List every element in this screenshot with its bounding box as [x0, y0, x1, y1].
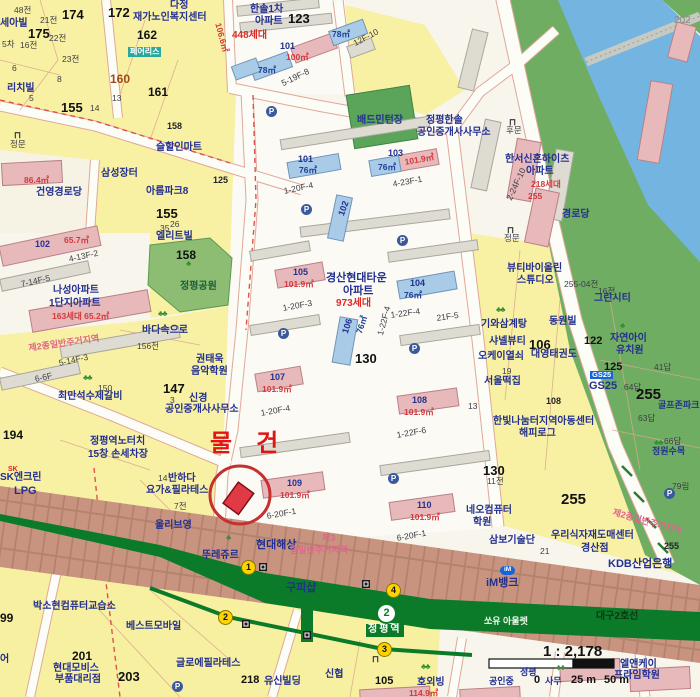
parcel-number: 5 [29, 94, 34, 103]
exit-1[interactable]: 1 [241, 560, 256, 575]
facility-icon[interactable] [362, 580, 370, 588]
gate-label: 정문 [10, 140, 26, 149]
area-measure: 76㎡ [378, 163, 396, 172]
shop-label: 경산점 [581, 544, 609, 555]
exit-2[interactable]: 2 [218, 610, 233, 625]
scale-bar-black [573, 659, 614, 668]
apartment-label: 아파트 [255, 17, 283, 28]
parcel-number: 172 [108, 6, 130, 20]
shop-label: 박소현컴퓨터교습소 [33, 602, 116, 613]
gate-icon[interactable]: ⊓ [372, 655, 379, 664]
building-number: 109 [287, 479, 302, 488]
shop-label: 구피샵 [286, 583, 316, 595]
area-measure: 100㎡ [286, 53, 309, 62]
poi-label: 경로당 [562, 210, 590, 221]
tree-icon: ♣♣ [496, 306, 505, 314]
parking-icon[interactable]: P [278, 328, 289, 339]
parcel-number: 123 [288, 12, 310, 26]
area-measure: 86.4㎡ [24, 176, 49, 185]
poi-label: KDB산업은행 [608, 559, 672, 571]
shop-label: 바다속으로 [142, 326, 188, 337]
parking-icon[interactable]: P [664, 488, 675, 499]
parcel-number: 99 [0, 612, 13, 625]
building-number: 108 [412, 396, 427, 405]
households-label: 163세대 65.2㎡ [52, 312, 109, 321]
tree-icon: ♣♣ [421, 663, 430, 671]
parcel-number: 21전 [40, 16, 57, 25]
parcel-number: 255 [664, 542, 679, 551]
zoning-label: 제3 [322, 534, 335, 543]
parcel-number: 11전 [487, 477, 504, 486]
building-label: 세아빌 [0, 19, 28, 30]
facility-icon[interactable] [259, 563, 267, 571]
exit-4[interactable]: 4 [386, 583, 401, 598]
apartment-label: 나성아파트 [53, 286, 99, 297]
shop-label: 삼보기술단 [489, 536, 535, 547]
parcel-number: 130 [355, 352, 377, 366]
shop-label: 기와삼계탕 [481, 320, 527, 331]
shop-label: 글로에필라테스 [176, 659, 240, 670]
apartment-label: 아파트 [526, 167, 554, 178]
bank-icon[interactable]: iM [500, 566, 515, 575]
parcel-number: 105 [375, 676, 393, 688]
shop-label: 올리브영 [155, 521, 192, 532]
parcel-number: 5차 [2, 40, 15, 49]
area-measure: 101.9㎡ [410, 513, 440, 522]
parcel-number: 201 [72, 650, 92, 663]
shop-label: 스튜디오 [517, 276, 554, 287]
shop-label: 15창 손세차장 [88, 450, 148, 461]
tree-icon: ♣ [226, 534, 230, 542]
parcel-number: 22전 [49, 34, 66, 43]
shop-label: 프라임학원 [614, 671, 660, 682]
area-measure: 78㎡ [258, 66, 276, 75]
poi-label: 다정 [170, 1, 188, 12]
shop-label: 쏘유 아울렛 [484, 617, 528, 626]
poi-label: 공인중개사사무소 [417, 128, 491, 139]
parcel-number: 26 [170, 220, 179, 229]
building-number: 103 [388, 149, 403, 158]
facility-icon[interactable] [303, 631, 311, 639]
parcel-number: 194 [3, 429, 23, 442]
apartment-label: 한솔1차 [250, 5, 283, 16]
area-measure: 78㎡ [332, 30, 350, 39]
parcel-number: 48전 [14, 6, 31, 15]
tree-icon: ♣♣ [654, 439, 663, 447]
poi-label: 건영경로당 [36, 188, 82, 199]
shop-label: GS25 [589, 381, 617, 393]
tree-icon: ♣ [620, 322, 624, 330]
tree-icon: ♣♣ [83, 374, 92, 382]
poi-label: 해피로그 [519, 429, 556, 440]
exit-3[interactable]: 3 [377, 642, 392, 657]
parking-icon[interactable]: P [388, 473, 399, 484]
building-label: 유신빌딩 [264, 677, 301, 688]
scale-mid: 25 m [571, 675, 596, 687]
parcel-number: 14 [90, 104, 99, 113]
parcel-number: 162 [137, 29, 157, 42]
gate-icon[interactable]: ⊓ [14, 131, 21, 140]
area-measure: 65.7㎡ [64, 236, 89, 245]
zoning-label: 종일반주거지역 [290, 546, 348, 555]
shop-label: SK엔크린 [0, 473, 42, 484]
parcel-number: 7전 [174, 502, 187, 511]
parcel-number: 63답 [638, 414, 655, 423]
parcel-number: 255-04전 [564, 280, 598, 289]
parking-icon[interactable]: P [397, 235, 408, 246]
building-label: 동원빌 [549, 317, 577, 328]
gate-label: 후문 [506, 126, 522, 135]
building-number: 110 [417, 501, 432, 510]
parking-icon[interactable]: P [409, 343, 420, 354]
tree-icon: ♣♣ [556, 664, 565, 672]
shop-label: 샤넬뷰티 [489, 337, 526, 348]
poi-label: 아름파크8 [146, 187, 188, 198]
poi-label: 유치원 [616, 346, 644, 357]
area-measure: 114.9㎡ [409, 689, 438, 697]
station-name-badge[interactable]: 정평역 [366, 624, 404, 637]
shop-label: 학원 [473, 518, 491, 529]
poi-label: 한빛나눔터지역아동센터 [493, 417, 594, 428]
parcel-number: 13 [468, 402, 477, 411]
area-measure: 101.9㎡ [404, 408, 434, 417]
area-measure: 101.9㎡ [262, 385, 292, 394]
map-canvas[interactable]: 48전세아빌174172다정재가노인복지센터17521전5차16전22전23전6… [0, 0, 700, 697]
area-measure: 101.9㎡ [280, 491, 310, 500]
tree-icon: ♣♣ [158, 310, 167, 318]
apartment-label: 한서신혼하이츠 [505, 155, 569, 166]
building-label: 호외빙 [417, 678, 445, 689]
building-label: 엘리트빌 [156, 232, 193, 243]
parcel-number: 122 [584, 336, 602, 348]
building-number: 107 [270, 373, 285, 382]
parcel-number: 174 [62, 8, 84, 22]
poi-label: 정원수목 [652, 447, 685, 456]
building-number: 101 [298, 155, 313, 164]
parcel-number: 255 [561, 492, 586, 508]
parking-icon[interactable]: P [266, 106, 277, 117]
shop-label: 네오컴퓨터 [466, 506, 512, 517]
scale-zero: 0 [534, 675, 540, 687]
shop-label: 신경 [189, 394, 207, 405]
apartment-name: 경산현대타운 [326, 273, 387, 285]
shop-label: 반하다 [168, 474, 196, 485]
parcel-number: 8 [57, 75, 62, 84]
parcel-number: 147 [163, 382, 185, 396]
shop-label: 부품대리점 [55, 675, 101, 686]
shop-label: 정평역노터치 [90, 437, 145, 448]
parcel-number: 108 [546, 397, 561, 406]
poi-label: 삼성장터 [101, 169, 138, 180]
shop-badge[interactable]: GS25 [590, 371, 613, 379]
tree-icon: ♣ [186, 260, 190, 268]
parcel-number: 160 [110, 73, 130, 86]
parcel-number: 6 [12, 64, 17, 73]
building-number: 102 [35, 240, 50, 249]
parking-icon[interactable]: P [301, 204, 312, 215]
parcel-number: 125 [213, 176, 228, 185]
park-label: 정평공원 [180, 282, 217, 293]
shop-label: 요가&필라테스 [146, 486, 208, 497]
poi-label: 어 [0, 655, 9, 666]
households-label: 973세대 [336, 299, 371, 310]
poi-label: 공인중 [489, 677, 514, 686]
gate-icon[interactable]: ⊓ [507, 226, 514, 235]
shop-label: 음악학원 [191, 367, 228, 378]
area-measure: 76㎡ [299, 166, 317, 175]
shop-badge[interactable]: 페어리스 [128, 47, 161, 57]
parcel-number: 218 [241, 675, 259, 687]
map-base-layer [0, 0, 700, 697]
shop-label: LPG [14, 486, 37, 498]
parcel-number: 202 [674, 16, 691, 27]
parcel-number: 175 [28, 27, 50, 41]
station-line-circle: 2 [376, 603, 397, 624]
parcel-number: 255 [528, 192, 542, 201]
parcel-number: 41답 [654, 363, 671, 372]
parcel-number: 156전 [137, 342, 159, 351]
parcel-number: 161 [148, 86, 168, 99]
poi-label: 자연아이 [610, 334, 647, 345]
parcel-number: 13 [112, 94, 121, 103]
area-measure: 101.9㎡ [284, 280, 314, 289]
shop-label: 서울떡집 [484, 377, 521, 388]
building-number: 101 [280, 42, 295, 51]
shop-label: 슬할인마트 [156, 143, 202, 154]
households-label: 448세대 [232, 31, 267, 42]
subject-marker-label: 물 건 [210, 432, 287, 457]
area-measure: 76㎡ [404, 291, 422, 300]
parcel-number: 79림 [672, 482, 689, 491]
poi-label: 그린시티 [594, 294, 631, 305]
shop-label: 뚜레쥬르 [202, 551, 239, 562]
poi-label: 사무 [545, 677, 562, 686]
facility-icon[interactable] [242, 620, 250, 628]
shop-label: 우리식자재도매센터 [551, 531, 634, 542]
parcel-number: 16전 [20, 41, 37, 50]
parcel-number: 19 [502, 367, 511, 376]
shop-label: 오케이열쇠 [478, 352, 524, 363]
building-number: 105 [293, 268, 308, 277]
shop-label: 골프존파크 [658, 401, 699, 410]
parcel-number: 14 [158, 474, 167, 483]
poi-label: 신협 [325, 670, 343, 681]
shop-label: 권태욱 [196, 355, 224, 366]
scale-ratio: 1 : 2,178 [543, 644, 602, 660]
parcel-number: 21 [540, 547, 549, 556]
shop-label: 엘앤케이 [620, 660, 657, 671]
apartment-name: 아파트 [343, 286, 373, 298]
shop-label: 뷰티바이올린 [507, 264, 562, 275]
parcel-number: 158 [167, 122, 182, 131]
shop-label: 현대모비스 [53, 664, 99, 675]
households-label: 218세대 [531, 180, 561, 189]
shop-label: 대영태권도 [531, 350, 577, 361]
poi-label: 정평한솔 [426, 116, 463, 127]
apartment-label: 1단지아파트 [49, 299, 101, 310]
shop-label: 베스트모바일 [126, 622, 181, 633]
parcel-number: 203 [118, 670, 140, 684]
poi-label: 배드민턴장 [357, 116, 403, 127]
shop-label: 공인중개사사무소 [165, 405, 239, 416]
shop-label: 최만석수제갈비 [58, 392, 122, 403]
poi-label: 재가노인복지센터 [133, 13, 207, 24]
parcel-number: 66답 [664, 437, 681, 446]
parcel-number: 150 [98, 384, 112, 393]
poi-label: iM뱅크 [486, 578, 518, 590]
building-number: 104 [410, 279, 425, 288]
parcel-number: 23전 [62, 55, 79, 64]
parking-icon[interactable]: P [172, 681, 183, 692]
parcel-number: 155 [61, 101, 83, 115]
metro-line-label: 대구2호선 [596, 612, 638, 623]
